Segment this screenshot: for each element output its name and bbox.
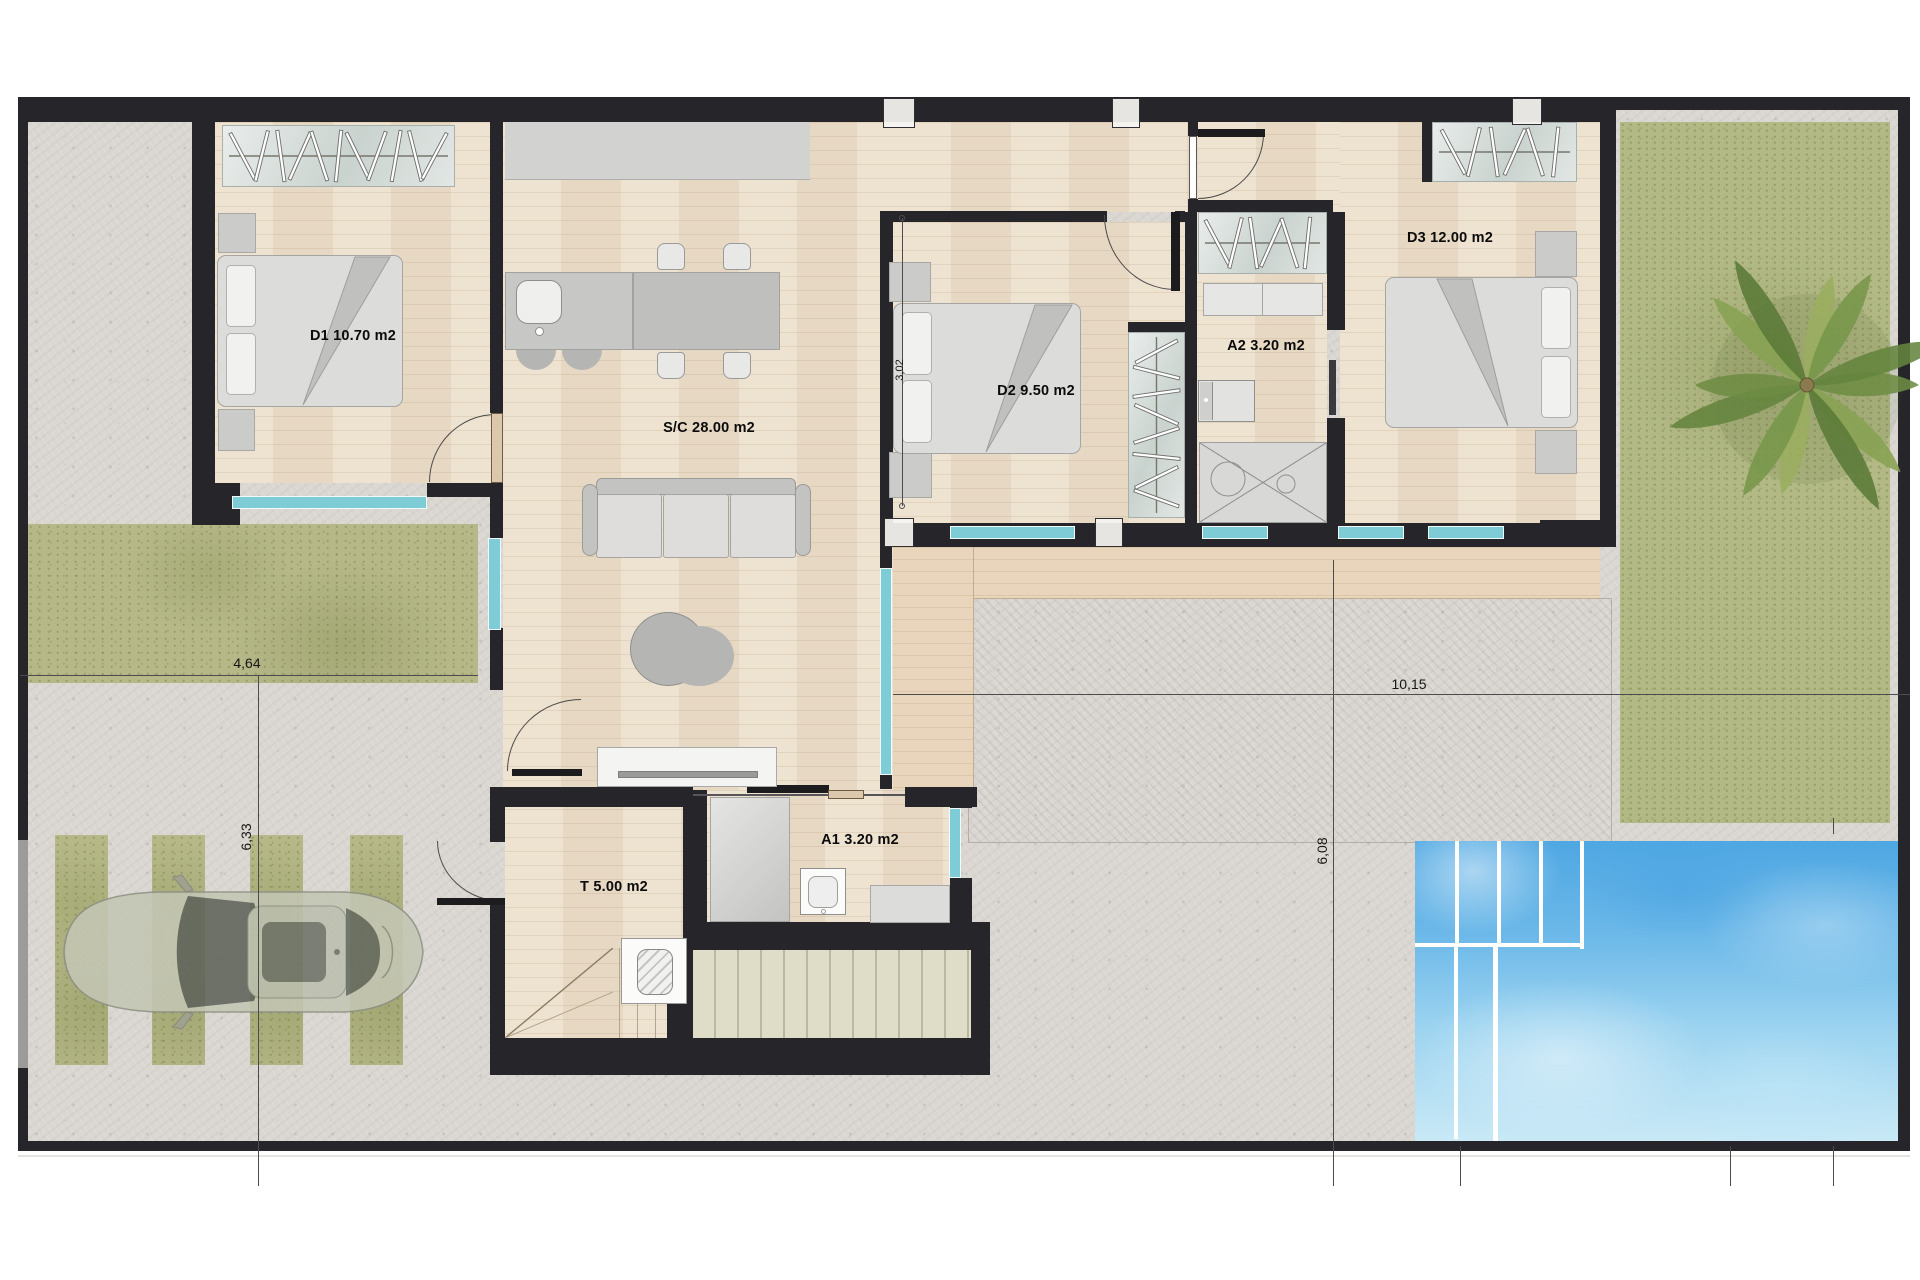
window (488, 538, 501, 630)
wall-segment (1422, 122, 1432, 182)
door-leaf-t (437, 898, 505, 905)
boiler-inner (637, 949, 673, 995)
pillow (902, 380, 932, 443)
dimension-line (258, 675, 259, 1186)
wall-segment (490, 628, 503, 690)
room-label-sc: S/C 28.00 m2 (663, 420, 755, 436)
plot-edge-line (18, 1155, 1910, 1157)
wall-segment (18, 1141, 1910, 1151)
room-label-d1: D1 10.70 m2 (310, 328, 396, 344)
washbasin-a1 (800, 868, 846, 915)
sofa-armrest (582, 484, 598, 556)
window (880, 568, 892, 775)
pool-step-line (1415, 943, 1584, 947)
dimension-end-dot (899, 215, 905, 221)
nightstand (1535, 231, 1577, 277)
clothes-hangers-icon (1129, 333, 1184, 517)
dimension-label-302: 3,02 (894, 359, 906, 380)
stairs-icon (505, 948, 613, 1038)
clothes-hangers-icon (1199, 213, 1326, 273)
wall-segment (1188, 199, 1198, 212)
bed-d3 (1385, 277, 1578, 428)
pool-step-line (1455, 841, 1459, 945)
dimension-tick (1730, 1146, 1731, 1186)
dining-table (633, 272, 780, 350)
nightstand (889, 452, 932, 498)
dimension-line (1333, 560, 1334, 1186)
dining-chair (657, 243, 685, 270)
swimming-pool (1415, 841, 1898, 1141)
room-label-a1: A1 3.20 m2 (821, 832, 899, 848)
sofa-seat (663, 494, 729, 558)
nightstand (889, 262, 931, 302)
wall-segment (490, 787, 693, 807)
wall-segment (18, 97, 1616, 122)
shower-tray-icon (1200, 443, 1326, 522)
sofa-seat (730, 494, 796, 558)
washer-knob (1204, 398, 1208, 402)
nightstand (1535, 430, 1577, 474)
entrance-door-leaf (1198, 129, 1265, 137)
boiler-t (621, 938, 687, 1004)
sofa-armrest (795, 484, 811, 556)
floor-corridor (893, 122, 1198, 212)
window (950, 526, 1075, 539)
room-label-t: T 5.00 m2 (580, 879, 648, 895)
wood-deck-horizontal (893, 547, 1600, 599)
pillow (1541, 287, 1571, 349)
clothes-hangers-icon (223, 126, 454, 186)
tv-screen (618, 771, 758, 778)
bed-d2 (893, 303, 1081, 454)
kitchen-sink (516, 280, 562, 324)
pool-step-line (1493, 947, 1498, 1141)
sofa-back (596, 478, 796, 495)
dimension-tick (1833, 818, 1834, 834)
wall-segment (880, 211, 1107, 222)
rug (664, 626, 734, 686)
pool-step-line (1454, 947, 1458, 1139)
door-leaf-d1 (491, 413, 503, 483)
wardrobe-d1 (222, 125, 455, 187)
window (1202, 526, 1268, 539)
driveway-gate (18, 840, 28, 1068)
sofa-seat (596, 494, 662, 558)
dimension-label-633: 6,33 (238, 823, 254, 850)
pool-step-line (1497, 841, 1501, 945)
dimension-label-608: 6,08 (1314, 837, 1330, 864)
dimension-line (20, 675, 478, 676)
dimension-line (893, 694, 1910, 695)
wardrobe-walkin-d2 (1128, 332, 1185, 518)
dining-chair (723, 243, 751, 270)
wall-segment (1188, 120, 1198, 136)
room-label-d3: D3 12.00 m2 (1407, 230, 1493, 246)
wall-segment (1128, 322, 1186, 332)
wood-deck-vertical (893, 547, 974, 790)
wall-segment (1616, 97, 1910, 110)
car-icon (48, 862, 438, 1042)
dimension-tick (1833, 1146, 1834, 1186)
nightstand (218, 409, 255, 451)
wall-segment (490, 122, 503, 413)
kitchen-faucet (535, 327, 544, 336)
window (949, 808, 961, 878)
washer-a2 (1198, 380, 1255, 422)
pillow (1541, 356, 1571, 418)
entrance-sidelight (1189, 136, 1197, 199)
palm-tree-icon (1657, 235, 1920, 535)
wall-segment (880, 775, 892, 789)
wardrobe-entry-a2 (1198, 212, 1327, 274)
basin-bowl (808, 876, 838, 908)
shower-a1 (710, 797, 790, 922)
basin-drain (821, 909, 826, 914)
pool-step-line (1539, 841, 1543, 945)
floor-plan-canvas: D1 10.70 m2 S/C 28.00 m2 D2 9.50 m2 A2 3… (0, 0, 1920, 1280)
wall-segment (1327, 418, 1345, 523)
sliding-door-panel (828, 790, 864, 799)
door-leaf-terrace (512, 769, 582, 776)
vanity-divider (1262, 284, 1263, 315)
sliding-door-track (693, 794, 905, 796)
nightstand (218, 213, 256, 253)
patio-hatched-area (968, 598, 1612, 843)
window (1428, 526, 1504, 539)
wall-segment (1327, 212, 1345, 330)
dimension-end-dot (899, 503, 905, 509)
door-leaf-d2 (1171, 212, 1180, 291)
room-label-d2: D2 9.50 m2 (997, 383, 1075, 399)
wall-segment (1193, 200, 1333, 212)
roof-vent-mark (883, 98, 915, 128)
roof-vent-mark (1112, 98, 1140, 128)
tv-sideboard (597, 747, 777, 787)
roof-vent-mark (884, 518, 914, 547)
vanity-counter-a2 (1203, 283, 1323, 316)
dimension-tick (1460, 1146, 1461, 1186)
pool-step-line (1580, 841, 1584, 949)
pocket-door-a2 (1329, 360, 1336, 415)
window (1338, 526, 1404, 539)
dining-chair (723, 352, 751, 379)
wall-segment (490, 483, 503, 538)
stair-tread-line (619, 948, 620, 1038)
wall-segment (683, 922, 990, 950)
wardrobe-d3 (1432, 122, 1577, 182)
clothes-hangers-icon (1433, 123, 1576, 181)
wall-segment (1540, 520, 1600, 547)
dining-chair (657, 352, 685, 379)
stairs-t (505, 948, 613, 1038)
room-label-a2: A2 3.20 m2 (1227, 338, 1305, 354)
wall-segment (950, 787, 972, 808)
wall-segment (490, 1038, 990, 1075)
pillow (902, 312, 932, 375)
dimension-label-1015: 10,15 (1391, 676, 1426, 692)
wall-segment (192, 122, 215, 483)
wall-segment (490, 790, 505, 842)
kitchen-counter (505, 122, 810, 180)
wall-segment (971, 948, 990, 1041)
roof-vent-mark (1095, 518, 1123, 547)
wall-segment (1600, 122, 1616, 523)
counter-a1 (870, 885, 950, 923)
pillow (226, 265, 256, 327)
floor-living-kitchen (503, 122, 893, 790)
slatted-terrace (693, 948, 971, 1038)
wall-segment (1185, 212, 1197, 523)
pillow (226, 333, 256, 395)
wall-segment (490, 903, 505, 1040)
wall-segment (683, 790, 707, 930)
dimension-label-464: 4,64 (233, 655, 260, 671)
shower-a2 (1199, 442, 1327, 523)
roof-vent-mark (1512, 98, 1542, 125)
window (232, 496, 427, 509)
sofa (582, 478, 812, 558)
